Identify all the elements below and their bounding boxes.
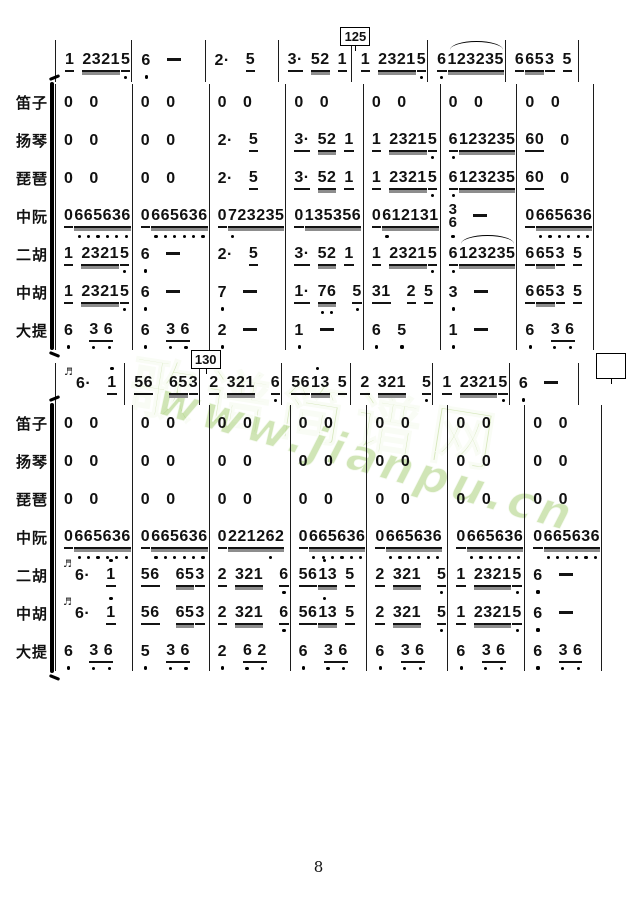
note-token: 2321 (81, 244, 119, 266)
note-token: 5 (437, 603, 446, 625)
low-octave-dots (512, 591, 521, 594)
note-digits: 0 (372, 206, 381, 228)
note-token: 2· (218, 169, 233, 190)
octave-dot-slot (170, 556, 179, 559)
note-digits: 65 (536, 282, 555, 304)
note-token: 0 (320, 93, 329, 114)
note-token: 665636 (386, 527, 442, 549)
octave-dot-slot (449, 270, 458, 273)
octave-dot-slot (395, 556, 404, 559)
grace-ornament-icon: ♬ (64, 367, 73, 378)
note-digits: 0 (456, 490, 465, 511)
octave-dot-slot (198, 556, 207, 559)
note-digits: 6 (372, 321, 381, 342)
note-digits: 6 (271, 373, 280, 395)
note-digits: 0 (89, 414, 98, 435)
octave-dot-slot (428, 194, 437, 197)
octave-dot-slot (151, 556, 160, 559)
measure-cell: 00 (525, 443, 601, 481)
note-digits: 0 (141, 131, 150, 152)
measure-cell: 63 6 (448, 633, 524, 671)
note-token: 2 (218, 565, 234, 587)
note-digits: 6 2 (243, 641, 267, 663)
note-token: 2321 (389, 168, 427, 190)
low-octave-dots (74, 556, 130, 559)
note-digits: 5 (563, 50, 572, 72)
octave-dot-slot (237, 235, 246, 238)
note-digits: 5 (338, 373, 347, 395)
octave-dot-slot (271, 399, 280, 402)
octave-dot-slot (437, 76, 446, 79)
dash-token (559, 573, 573, 576)
measure-cell: 00 (133, 405, 209, 443)
note-digits: 0 (299, 452, 308, 473)
note-digits: 0 (141, 93, 150, 114)
note-digits: 6 (449, 168, 458, 190)
note-digits: 0 (166, 93, 175, 114)
note-digits: 0 (324, 452, 333, 473)
octave-dot-slot (562, 556, 571, 559)
octave-dot-slot (327, 311, 336, 314)
measure-cell: 0665636 (56, 519, 132, 557)
measure-cell: 6 (509, 363, 579, 405)
low-octave-dots (324, 667, 348, 670)
octave-dot-slot (428, 270, 437, 273)
note-digits: 0 (141, 169, 150, 190)
note-digits: 1 (65, 50, 74, 72)
dash-token (474, 328, 488, 331)
grace-ornament-icon: ♬ (63, 597, 72, 608)
measure-column: 00000006656366·♬16·♬163 6 (55, 405, 132, 671)
measure-cell: 0665636 (291, 519, 367, 557)
note-digits: 5 (397, 321, 406, 342)
note-token: 5 (338, 373, 347, 395)
octave-dot-slot (247, 556, 256, 559)
note-token: 1 (344, 130, 353, 152)
note-token: 52 (318, 130, 344, 152)
note-digits: 0 (141, 206, 150, 228)
low-octave-dots (437, 629, 446, 632)
note-token: 0 (559, 452, 568, 473)
octave-dot-slot (161, 235, 170, 238)
note-token: 0 (560, 131, 569, 152)
note-token: 3 (545, 50, 561, 72)
note-digits: 1 (338, 50, 347, 72)
octave-dot-slot (141, 75, 150, 78)
low-octave-dots (449, 156, 458, 159)
note-digits: 0 (320, 93, 329, 114)
note-digits: 1 (64, 282, 73, 304)
note-digits: 5 (246, 50, 255, 72)
note-digits: 7 (218, 283, 227, 304)
instrument-label: 大提 (0, 633, 48, 671)
note-token: 2 (407, 282, 423, 304)
note-token: 65 (169, 373, 188, 395)
octave-dot-slot (324, 367, 337, 370)
note-digits: 0 (559, 452, 568, 473)
measure-cell: 123215 (432, 363, 508, 405)
note-token: 2321 (378, 50, 416, 72)
octave-dot-slot (401, 667, 409, 670)
note-digits: 0 (89, 452, 98, 473)
note-digits: 6 (525, 282, 534, 304)
measure-cell: 00 (56, 443, 132, 481)
note-digits: 0 (64, 169, 73, 190)
note-token: 1 (344, 168, 353, 190)
note-digits: 5 (428, 244, 437, 266)
measure-cell: 600 (517, 122, 593, 160)
note-digits: 5 (437, 603, 446, 625)
octave-dot-slot (141, 307, 150, 310)
note-digits: 0 (243, 452, 252, 473)
low-octave-dots (318, 311, 337, 314)
note-digits: 3 6 (89, 320, 113, 342)
octave-dot-slot (294, 345, 303, 348)
octave-dot-slot (121, 235, 130, 238)
note-digits: 56 (299, 565, 318, 587)
octave-dot-slot (423, 556, 432, 559)
note-digits: 0 (141, 527, 150, 549)
note-digits: 1 (106, 565, 115, 587)
note-token: 665636 (544, 527, 600, 549)
octave-dot-slot (74, 556, 83, 559)
measure-column: 00000006656366663 6 (132, 84, 209, 350)
octave-dot-slot (106, 597, 115, 600)
instrument-label: 中胡 (0, 595, 48, 633)
octave-dot-slot (482, 667, 490, 670)
note-token: 0 (294, 93, 303, 114)
note-token: 1 (64, 282, 80, 304)
note-token: 2 (360, 373, 376, 395)
low-octave-dots (482, 667, 506, 670)
octave-dot-slot (564, 235, 573, 238)
note-digits: 2321 (389, 130, 427, 152)
octave-dot-slot (536, 235, 545, 238)
note-digits: 5 (498, 373, 507, 395)
note-digits: 6 (456, 642, 465, 663)
note-token: 5 (246, 50, 255, 72)
dash-token (559, 611, 573, 614)
note-digits: 3 (195, 565, 204, 587)
note-token: 0 (64, 527, 73, 549)
measure-cell: 00 (448, 443, 524, 481)
octave-dot-slot (141, 666, 150, 669)
note-digits: 0 (166, 490, 175, 511)
measure-cell: 1 (286, 312, 362, 350)
note-digits: 2321 (82, 50, 120, 72)
low-octave-dots (437, 76, 446, 79)
note-token: 1 (65, 50, 81, 72)
measure-cell: 600 (517, 160, 593, 198)
measure-cell: 6·♬1 (56, 557, 132, 595)
measure-cell: 56653 (124, 363, 199, 405)
note-token: 6 (279, 565, 288, 587)
note-token: 2321 (389, 130, 427, 152)
low-octave-dots (533, 590, 542, 593)
note-digits: 0 (482, 490, 491, 511)
note-token: 123235 (448, 50, 504, 72)
note-token: 0 (299, 527, 308, 549)
octave-dot-slot (299, 666, 308, 669)
note-digits: 6 (141, 245, 150, 266)
note-token: 5 (512, 603, 521, 625)
note-digits: 52 (318, 244, 337, 266)
note-digits: 1 (106, 603, 115, 625)
note-digits: 0 (89, 93, 98, 114)
measure-cell: 123215 (364, 236, 440, 274)
note-digits: 0 (324, 490, 333, 511)
note-digits: 135356 (305, 206, 361, 228)
octave-dot-slot (498, 667, 506, 670)
measure-cell: 6·♬1 (55, 363, 124, 405)
note-digits: 0 (141, 414, 150, 435)
note-token: 3 (189, 373, 198, 395)
note-token: 5 (249, 130, 258, 152)
note-digits: 3 6 (324, 641, 348, 663)
note-token: 36 (449, 203, 458, 231)
low-octave-dots (299, 666, 308, 669)
note-digits: 5 (512, 565, 521, 587)
note-token: 0 (525, 206, 534, 228)
measure-column: 006123235612323536612323531 (440, 84, 517, 350)
note-digits: 3 (545, 50, 554, 72)
measure-cell: 00 (56, 160, 132, 198)
note-digits: 65 (176, 603, 195, 625)
note-token: 5 (397, 321, 406, 342)
note-token: 0 (456, 452, 465, 473)
note-digits: 52 (318, 130, 337, 152)
instrument-label: 中胡 (0, 274, 48, 312)
low-octave-dots (449, 194, 458, 197)
note-digits: 2· (215, 51, 230, 72)
octave-dot-slot (189, 556, 198, 559)
note-digits: 0 (218, 490, 227, 511)
note-digits: 6 (449, 244, 458, 266)
note-digits: 0 (324, 414, 333, 435)
note-token: 1 (64, 244, 80, 266)
note-digits: 5 (573, 282, 582, 304)
note-digits: 0 (533, 527, 542, 549)
slur-arc (450, 41, 503, 50)
measure-cell: 2 (210, 312, 286, 350)
measure-cell: 26 2 (210, 633, 290, 671)
low-octave-dots (89, 346, 113, 349)
note-digits: 0 (64, 490, 73, 511)
measure-cell: 63 6 (291, 633, 367, 671)
measure-cell: 00 (364, 84, 440, 122)
note-token: 5 (352, 282, 361, 304)
instrument-label: 笛子 (0, 84, 48, 122)
low-octave-dots (519, 398, 528, 401)
low-octave-dots (141, 307, 150, 310)
note-token: 0 (482, 414, 491, 435)
note-token: 5 (120, 282, 129, 304)
octave-dot-slot (198, 235, 207, 238)
note-digits: 3 (556, 282, 565, 304)
measure-cell: 6123235 (441, 236, 517, 274)
low-octave-dots (141, 269, 150, 272)
instrument-labels: 笛子扬琴琵琶中阮二胡中胡大提 (0, 405, 48, 671)
note-digits: 321 (235, 603, 263, 625)
note-digits: 65 (176, 565, 195, 587)
high-octave-dots (318, 559, 344, 562)
note-token: 6·♬ (75, 604, 90, 625)
note-token: 5 (121, 50, 130, 72)
note-token: 6 2 (243, 641, 267, 663)
note-digits: 321 (378, 373, 406, 395)
note-token: 321 (393, 565, 421, 587)
octave-dot-slot (141, 345, 150, 348)
note-token: 0 (218, 452, 227, 473)
octave-dot-slot (311, 367, 324, 370)
octave-dot-slot (437, 591, 446, 594)
measure-cell: 3125 (364, 274, 440, 312)
octave-dot-slot (467, 556, 476, 559)
low-octave-dots (422, 399, 431, 402)
note-token: 0 (89, 452, 98, 473)
note-digits: 2 (375, 603, 384, 625)
note-digits: 2· (218, 245, 233, 266)
octave-dot-slot (331, 559, 344, 562)
note-token: 5 (141, 642, 150, 663)
octave-dot-slot (420, 235, 429, 238)
note-token: 321 (235, 565, 263, 587)
measure-cell: 7 (210, 274, 286, 312)
note-digits: 221262 (228, 527, 284, 549)
octave-dot-slot (89, 667, 97, 670)
note-token: 2321 (389, 244, 427, 266)
measure-cell: 0665636 (448, 519, 524, 557)
note-digits: 5 (120, 282, 129, 304)
note-token: 0 (401, 490, 410, 511)
measure-cell: 00 (133, 481, 209, 519)
note-digits: 0 (456, 414, 465, 435)
note-digits: 3 (556, 244, 565, 266)
note-token: 0 (141, 414, 150, 435)
note-token: 6 (525, 282, 534, 304)
measure-cell: 66535 (517, 274, 593, 312)
octave-dot-slot (397, 345, 406, 348)
measure-cell: 23215 (367, 595, 447, 633)
measure-cell: 66535 (505, 40, 579, 82)
note-token: 2· (218, 245, 233, 266)
note-token: 2 (218, 642, 227, 663)
measure-cell: 00 (210, 443, 290, 481)
note-token: 2321 (460, 373, 498, 395)
note-digits: 321 (227, 373, 255, 395)
note-digits: 6 (533, 642, 542, 663)
melody-row: 12321562·53·521123215612323566535 (55, 40, 579, 82)
note-token: 5 (249, 244, 258, 266)
note-digits: 0 (375, 490, 384, 511)
measure-cell: 0135356 (286, 198, 362, 236)
note-digits: 123235 (459, 244, 515, 266)
note-digits: 52 (318, 168, 337, 190)
note-token: 1 (106, 565, 115, 587)
instrument-label: 扬琴 (0, 443, 48, 481)
low-octave-dots (559, 667, 583, 670)
note-token: 0 (324, 414, 333, 435)
measure-cell: 6123235 (441, 160, 517, 198)
measure-cell: 6123235 (427, 40, 505, 82)
low-octave-dots (512, 629, 521, 632)
note-token: 665636 (151, 527, 207, 549)
note-digits: 13 (318, 565, 337, 587)
octave-dot-slot (275, 235, 284, 238)
note-digits: 1 (361, 50, 370, 72)
note-digits: 5 (345, 603, 354, 625)
measure-column: 0000000665636566535665353 6 (132, 405, 209, 671)
note-token: 221262 (228, 527, 284, 549)
note-digits: 0 (474, 93, 483, 114)
note-digits: 6 (64, 642, 73, 663)
note-token: 5 (437, 565, 446, 587)
note-digits: 5 (249, 244, 258, 266)
note-digits: 6 (533, 566, 542, 587)
note-token: 0 (243, 452, 252, 473)
note-digits: 6· (75, 604, 90, 625)
note-token: 6 (533, 642, 542, 663)
octave-dot-slot (93, 235, 102, 238)
note-digits: 6 (449, 130, 458, 152)
note-token: 6 (449, 168, 458, 190)
note-digits: 1 (372, 244, 381, 266)
note-token: 6 (533, 604, 542, 625)
note-token: 0 (141, 452, 150, 473)
measure-cell: 3·521 (278, 40, 351, 82)
octave-dot-slot (555, 235, 564, 238)
octave-dot-slot (476, 556, 485, 559)
low-octave-dots (533, 628, 542, 631)
note-token: 6 (375, 642, 384, 663)
note-digits: 65 (536, 244, 555, 266)
note-token: 0 (64, 452, 73, 473)
note-token: 0 (218, 206, 227, 228)
low-octave-dots (449, 345, 458, 348)
note-digits: 1 (107, 373, 116, 395)
note-token: 0 (456, 414, 465, 435)
high-octave-dots (106, 597, 115, 600)
measure-cell: 00 (517, 84, 593, 122)
note-token: 2321 (81, 282, 119, 304)
measure-column: 0000000665636232152321563 6 (366, 405, 447, 671)
note-token: 6 (64, 642, 73, 663)
low-octave-dots (141, 666, 150, 669)
instrument-label: 笛子 (0, 405, 48, 443)
page-number: 8 (0, 858, 637, 876)
low-octave-dots (428, 194, 437, 197)
octave-dot-slot (405, 556, 414, 559)
measure-cell: 00 (133, 160, 209, 198)
octave-dot-slot (237, 556, 246, 559)
dash-token (474, 290, 488, 293)
note-token: 1 (449, 321, 458, 342)
note-digits: 2321 (474, 565, 512, 587)
low-octave-dots (498, 399, 507, 402)
measure-cell: 2·5 (210, 236, 286, 274)
note-token: 0 (401, 414, 410, 435)
note-token: 0 (141, 206, 150, 228)
low-octave-dots (294, 345, 303, 348)
note-token: 5 (428, 244, 437, 266)
octave-dot-slot (64, 345, 73, 348)
note-digits: 665636 (386, 527, 442, 549)
octave-dot-slot (544, 556, 553, 559)
note-token: 0 (64, 93, 73, 114)
note-token: 0 (166, 169, 175, 190)
note-token: 0 (64, 490, 73, 511)
note-token: 0 (89, 131, 98, 152)
